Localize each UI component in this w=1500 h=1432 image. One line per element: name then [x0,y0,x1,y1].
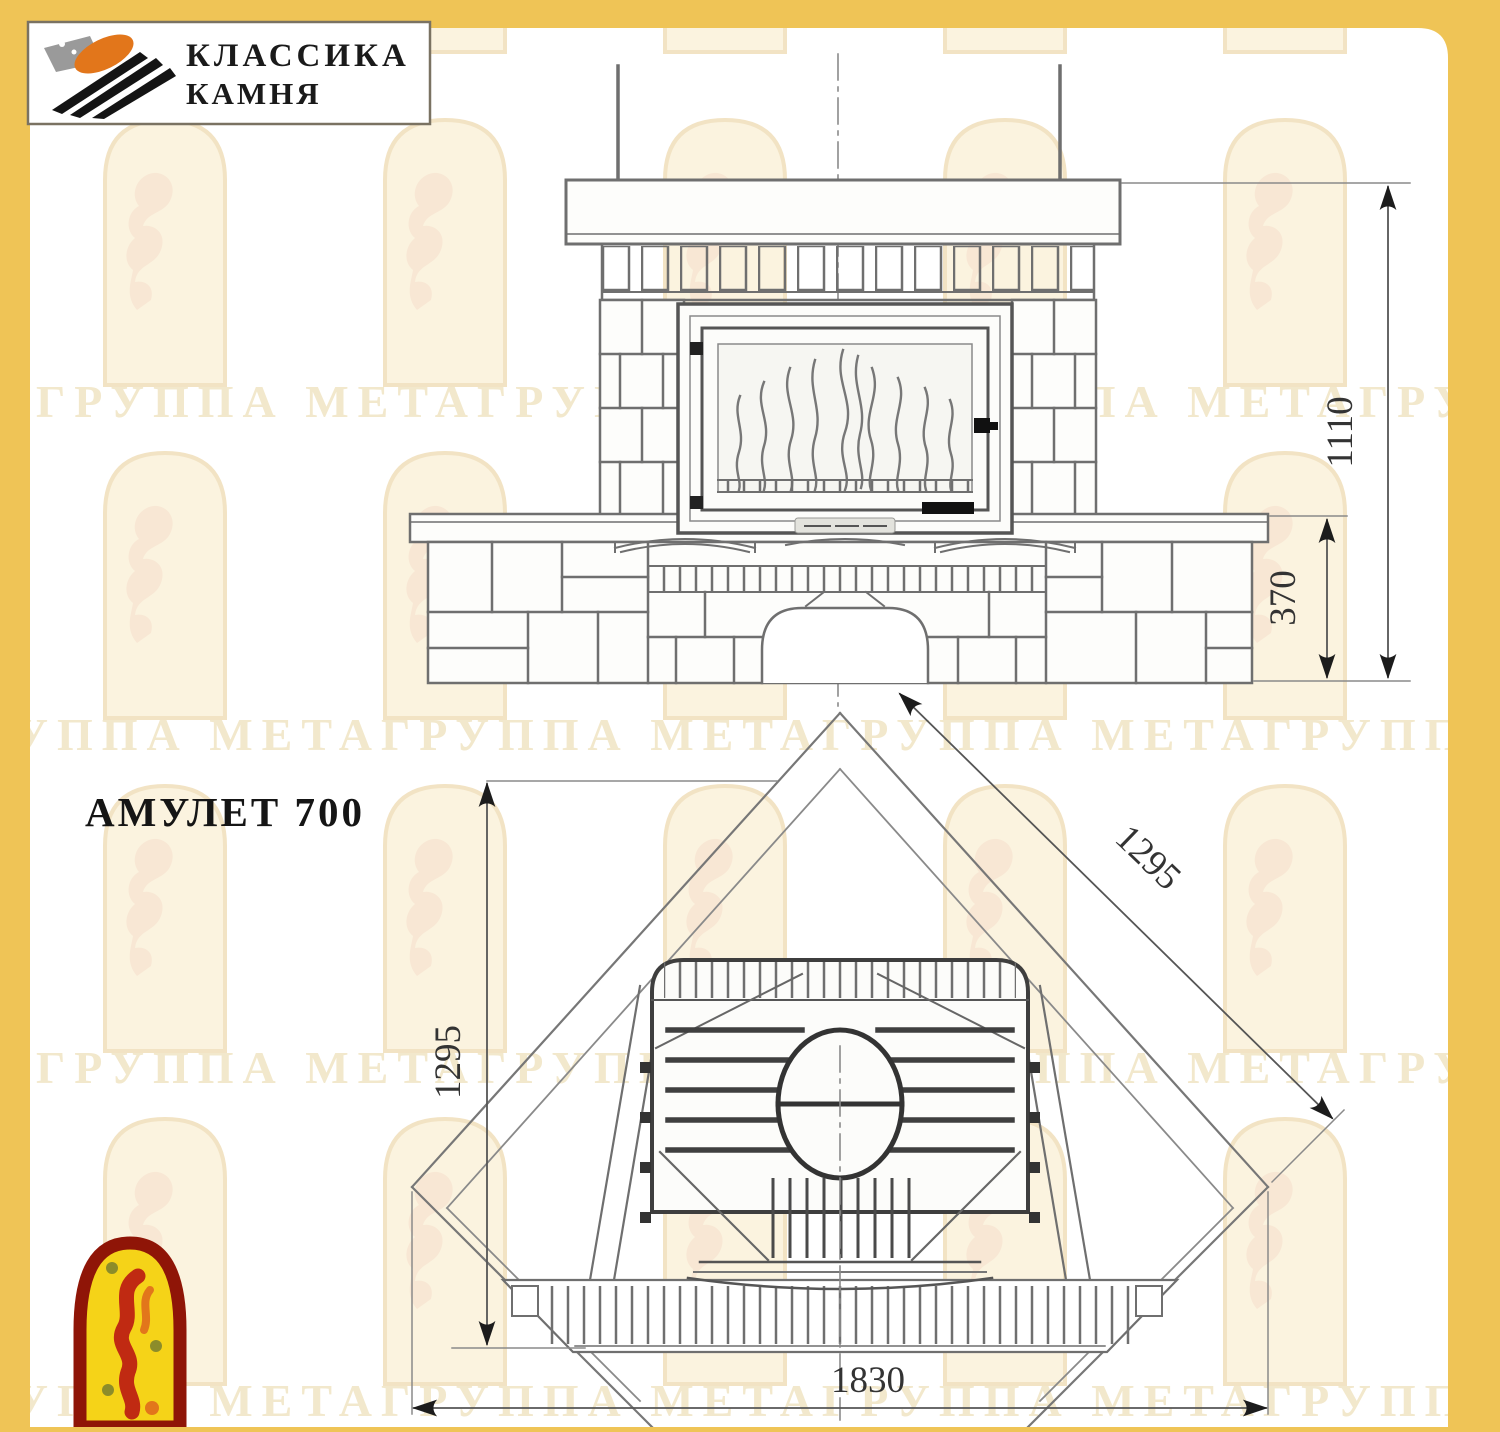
brick-column-left [600,300,684,516]
logo-text-line1: КЛАССИКА [186,38,410,74]
company-logo: КЛАССИКА КАМНЯ [28,22,430,124]
brick-column-right [1012,300,1096,516]
dim-value-plan-left: 1295 [428,1025,469,1099]
firebox-grate [718,480,972,492]
fireplace-technical-drawing: ГРУППА МЕТАГРУППА МЕТАГРУППА МЕТАГРУППА … [0,0,1500,1427]
model-title: АМУЛЕТ 700 [85,789,365,835]
mascot-emblem [80,1243,180,1427]
door-hinge-bottom [690,496,703,509]
dim-value-bench-height: 370 [1263,570,1304,626]
firebox-insert [678,304,1012,533]
watermark-text-row: ГРУППА МЕТАГРУППА МЕТАГРУППА МЕТАГРУППА … [0,1375,1500,1426]
dim-value-plan-width: 1830 [831,1360,905,1401]
door-hinge-top [690,342,703,355]
dim-value-front-height: 1110 [1320,396,1361,467]
dentil-row [602,246,1094,292]
logo-text-line2: КАМНЯ [186,76,322,111]
bench-arch-niche [762,608,928,683]
door-handle [974,418,990,433]
damper-bar [922,502,974,514]
bench-dentil-strip [648,566,1046,592]
watermark-text-row: ГРУППА МЕТАГРУППА МЕТАГРУППА МЕТАГРУППА … [0,709,1500,760]
